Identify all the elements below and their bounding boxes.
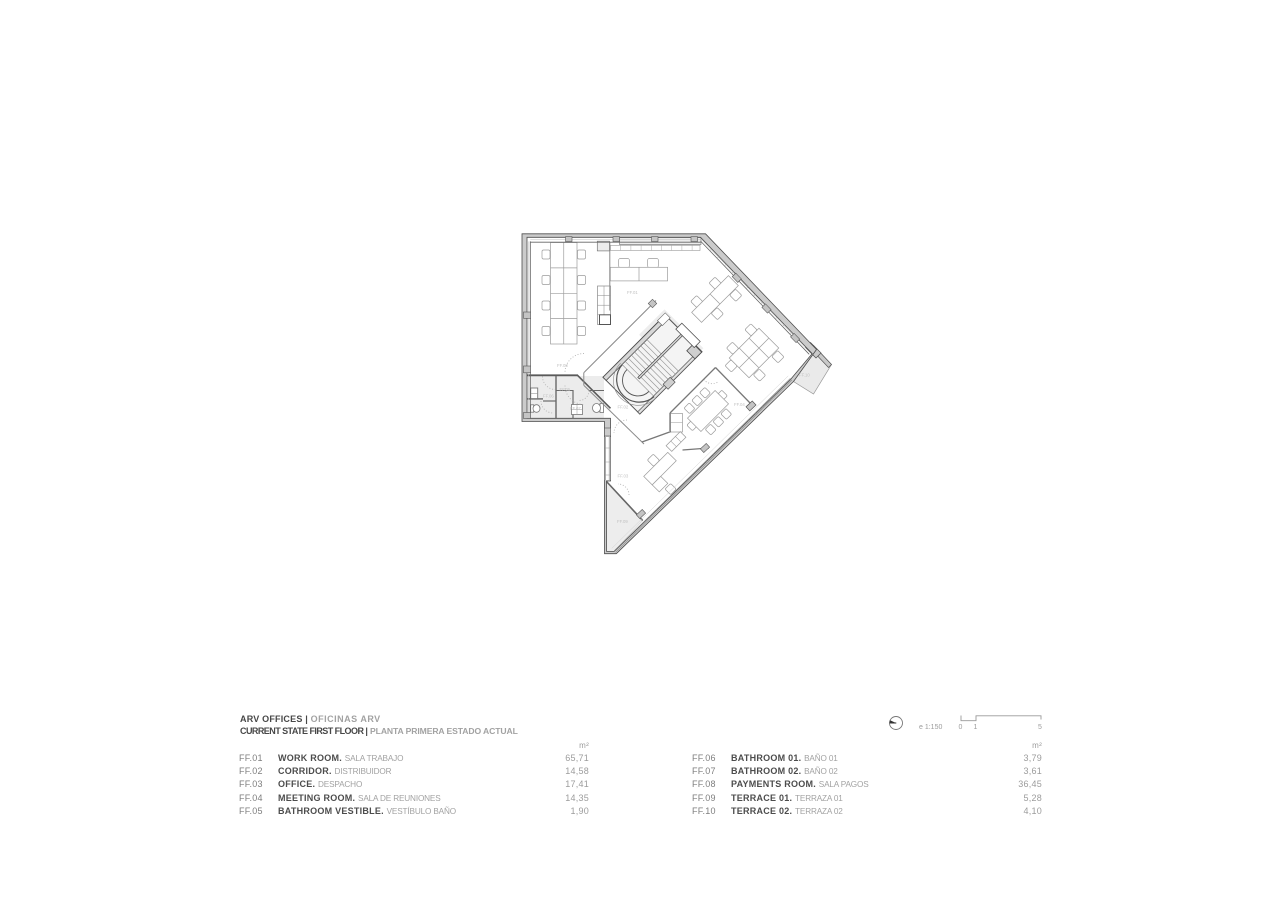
svg-text:FF.09: FF.09 — [617, 519, 628, 524]
svg-text:FF.08: FF.08 — [557, 363, 568, 368]
svg-text:5: 5 — [1038, 724, 1042, 731]
svg-text:FF.02: FF.02 — [618, 405, 629, 410]
svg-text:0: 0 — [959, 724, 963, 731]
svg-text:FF.04: FF.04 — [734, 402, 745, 407]
svg-text:e 1:150: e 1:150 — [919, 724, 942, 731]
svg-text:FF.10: FF.10 — [799, 372, 810, 377]
svg-text:FF.01: FF.01 — [627, 290, 638, 295]
svg-text:FF.03: FF.03 — [618, 474, 629, 479]
svg-text:FF.07: FF.07 — [570, 406, 581, 411]
svg-text:1: 1 — [974, 724, 978, 731]
svg-text:FF.06: FF.06 — [543, 393, 554, 398]
svg-text:FF.05: FF.05 — [560, 387, 571, 392]
